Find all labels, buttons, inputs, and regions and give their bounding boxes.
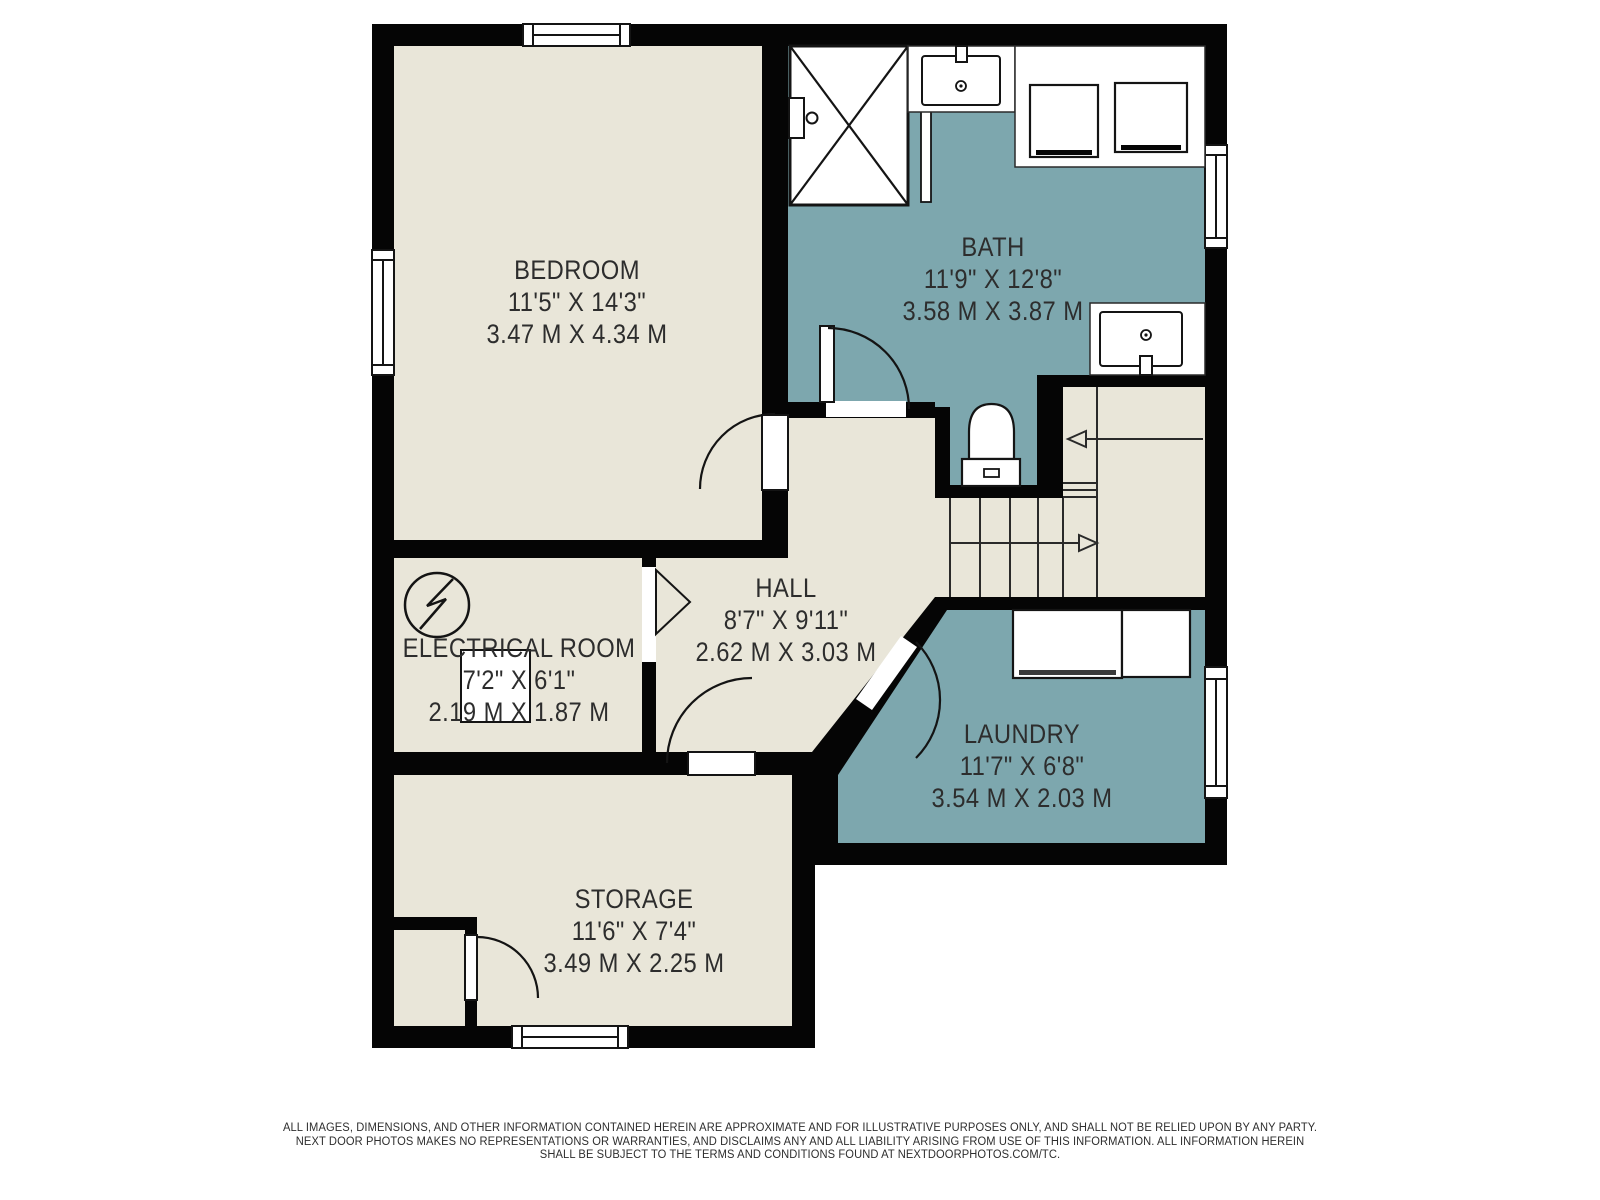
washer-icon xyxy=(1013,610,1122,678)
toilet-icon xyxy=(962,404,1020,486)
room-dim-m: 2.62 M X 3.03 M xyxy=(696,636,877,668)
room-label-hall: HALL 8'7" X 9'11" 2.62 M X 3.03 M xyxy=(696,572,877,668)
dryer-icon xyxy=(1122,610,1190,677)
disclaimer-line1: ALL IMAGES, DIMENSIONS, AND OTHER INFORM… xyxy=(267,1122,1334,1136)
window-icon xyxy=(1205,145,1227,248)
room-dim-ft: 11'6" X 7'4" xyxy=(544,915,725,947)
room-label-laundry: LAUNDRY 11'7" X 6'8" 3.54 M X 2.03 M xyxy=(932,718,1113,814)
room-name: STORAGE xyxy=(544,883,725,915)
room-dim-m: 3.49 M X 2.25 M xyxy=(544,947,725,979)
disclaimer-line2: NEXT DOOR PHOTOS MAKES NO REPRESENTATION… xyxy=(267,1136,1334,1150)
room-name: LAUNDRY xyxy=(932,718,1113,750)
laundry-appliances xyxy=(1013,610,1190,678)
disclaimer-line3: SHALL BE SUBJECT TO THE TERMS AND CONDIT… xyxy=(267,1149,1334,1163)
room-name: BEDROOM xyxy=(487,254,668,286)
sink-icon xyxy=(908,46,1015,112)
window-icon xyxy=(523,24,630,46)
room-dim-ft: 7'2" X 6'1" xyxy=(403,664,636,696)
room-dim-m: 3.54 M X 2.03 M xyxy=(932,782,1113,814)
room-dim-m: 3.58 M X 3.87 M xyxy=(903,295,1084,327)
room-name: HALL xyxy=(696,572,877,604)
room-label-electrical: ELECTRICAL ROOM 7'2" X 6'1" 2.19 M X 1.8… xyxy=(403,632,636,728)
window-icon xyxy=(512,1026,628,1048)
window-icon xyxy=(1205,667,1227,798)
room-dim-ft: 8'7" X 9'11" xyxy=(696,604,877,636)
cabinet-icon xyxy=(1015,46,1205,167)
electrical-symbol-icon xyxy=(405,573,469,637)
floorplan-page: BEDROOM 11'5" X 14'3" 3.47 M X 4.34 M BA… xyxy=(0,0,1600,1200)
disclaimer: ALL IMAGES, DIMENSIONS, AND OTHER INFORM… xyxy=(267,1122,1334,1163)
room-name: ELECTRICAL ROOM xyxy=(403,632,636,664)
room-dim-m: 2.19 M X 1.87 M xyxy=(403,696,636,728)
room-name: BATH xyxy=(903,231,1084,263)
room-dim-ft: 11'5" X 14'3" xyxy=(487,286,668,318)
room-label-bath: BATH 11'9" X 12'8" 3.58 M X 3.87 M xyxy=(903,231,1084,327)
window-icon xyxy=(372,250,394,375)
room-dim-m: 3.47 M X 4.34 M xyxy=(487,318,668,350)
room-dim-ft: 11'9" X 12'8" xyxy=(903,263,1084,295)
room-label-storage: STORAGE 11'6" X 7'4" 3.49 M X 2.25 M xyxy=(544,883,725,979)
room-label-bedroom: BEDROOM 11'5" X 14'3" 3.47 M X 4.34 M xyxy=(487,254,668,350)
room-dim-ft: 11'7" X 6'8" xyxy=(932,750,1113,782)
sink-icon xyxy=(1090,303,1205,375)
